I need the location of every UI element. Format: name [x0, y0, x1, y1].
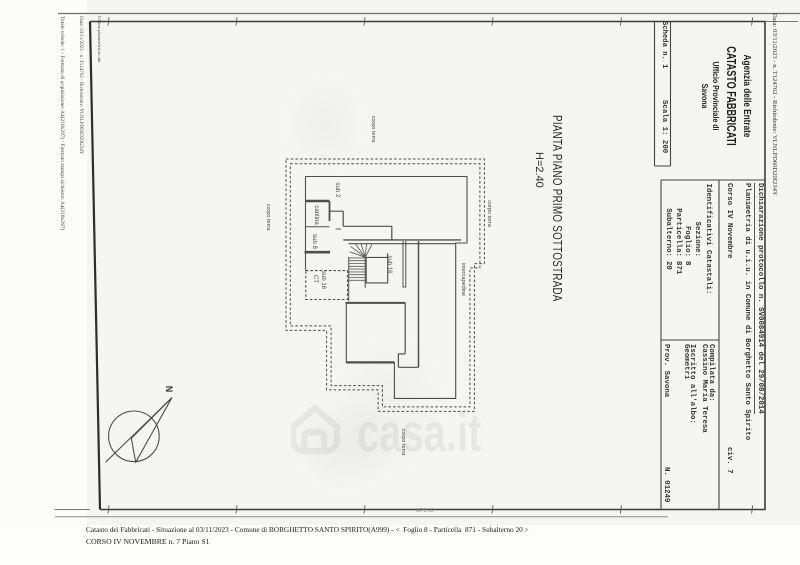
svg-text:casa.it: casa.it	[357, 405, 482, 455]
